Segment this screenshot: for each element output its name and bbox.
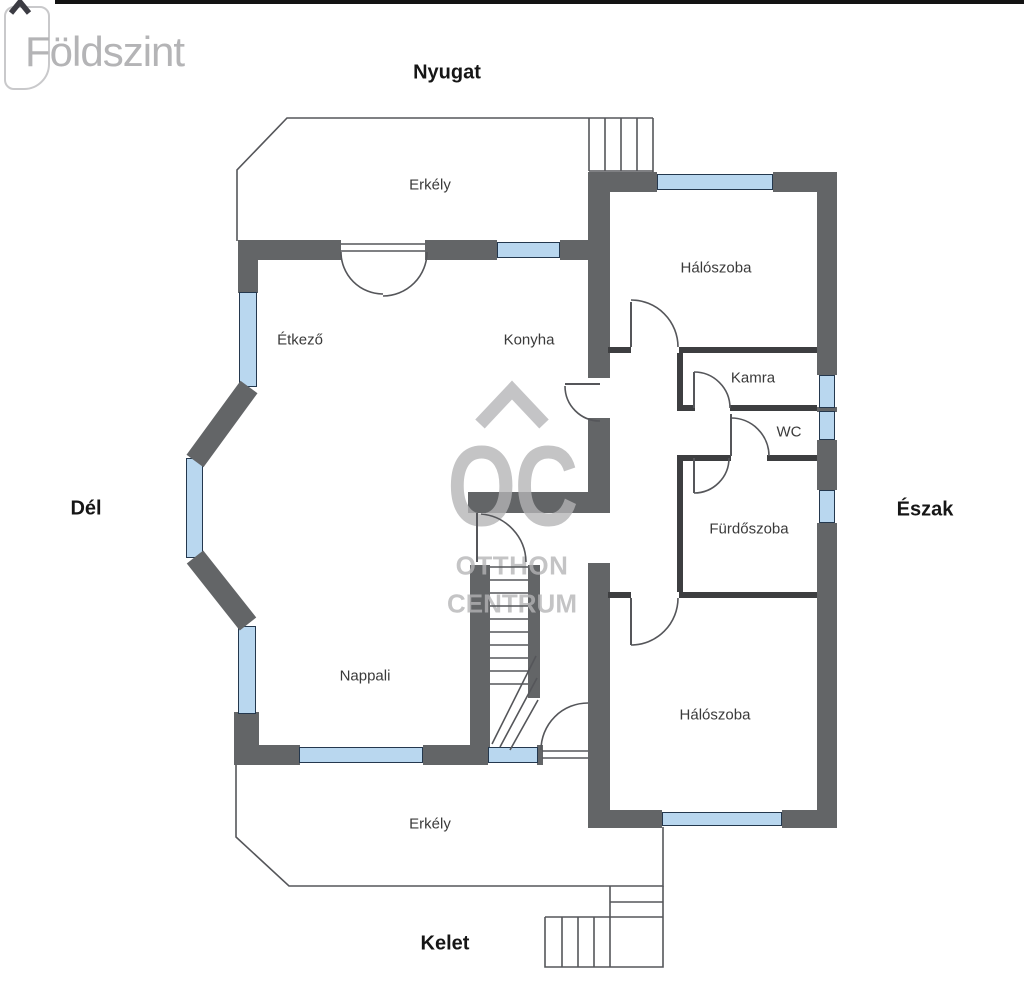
watermark-monogram: OC <box>447 420 577 553</box>
watermark-name-line2: CENTRUM <box>447 589 577 620</box>
watermark-name-line1: OTTHON <box>456 551 569 582</box>
watermark: OC OTTHON CENTRUM <box>0 0 1024 1006</box>
floorplan-page: OC OTTHON CENTRUM <box>0 0 1024 1006</box>
